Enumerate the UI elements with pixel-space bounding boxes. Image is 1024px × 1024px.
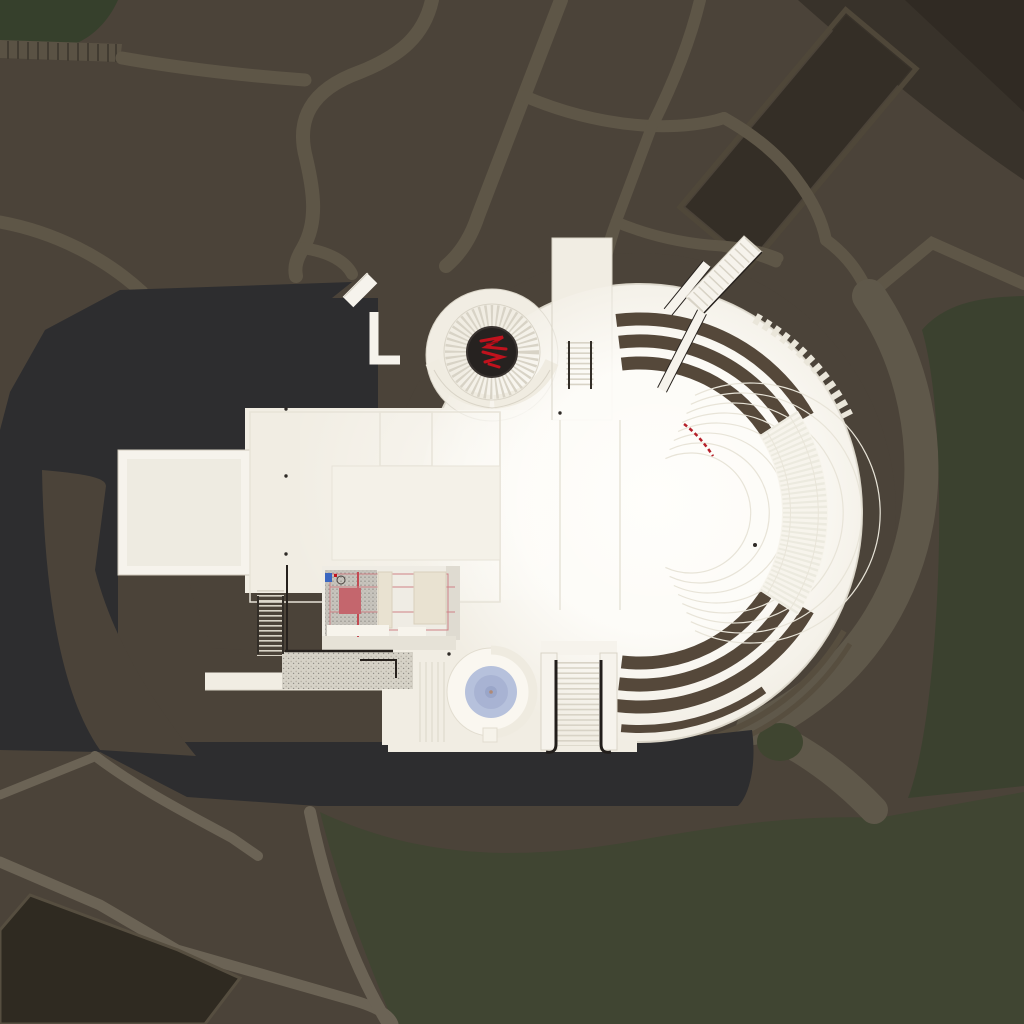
granite-terrace (282, 652, 413, 689)
red-carpet (339, 588, 361, 614)
dot-2 (284, 474, 287, 477)
dot-5 (558, 411, 561, 414)
white-plinth-2 (398, 627, 426, 636)
interior-cutaway (322, 566, 460, 650)
cutaway-apron (322, 636, 456, 650)
render-viewport (0, 0, 1024, 1024)
dot-1 (284, 407, 287, 410)
blue-marker (325, 573, 332, 582)
survey-dot-east (753, 543, 757, 547)
dome-notch (483, 728, 497, 742)
stair-pier-right (600, 653, 617, 750)
skylight-dome (420, 648, 535, 742)
dot-3 (284, 552, 287, 555)
glass-roof-panel (332, 466, 500, 560)
dot-4 (447, 652, 450, 655)
beige-panel-2 (414, 572, 446, 624)
apse-dark-disc (467, 327, 517, 377)
beige-panel-1 (378, 572, 392, 628)
site-plan-render (0, 0, 1024, 1024)
red-marker (334, 574, 337, 577)
dome-oculus-dot (489, 690, 493, 694)
white-plinth-1 (327, 625, 389, 636)
west-wing-courtyard (127, 459, 241, 566)
